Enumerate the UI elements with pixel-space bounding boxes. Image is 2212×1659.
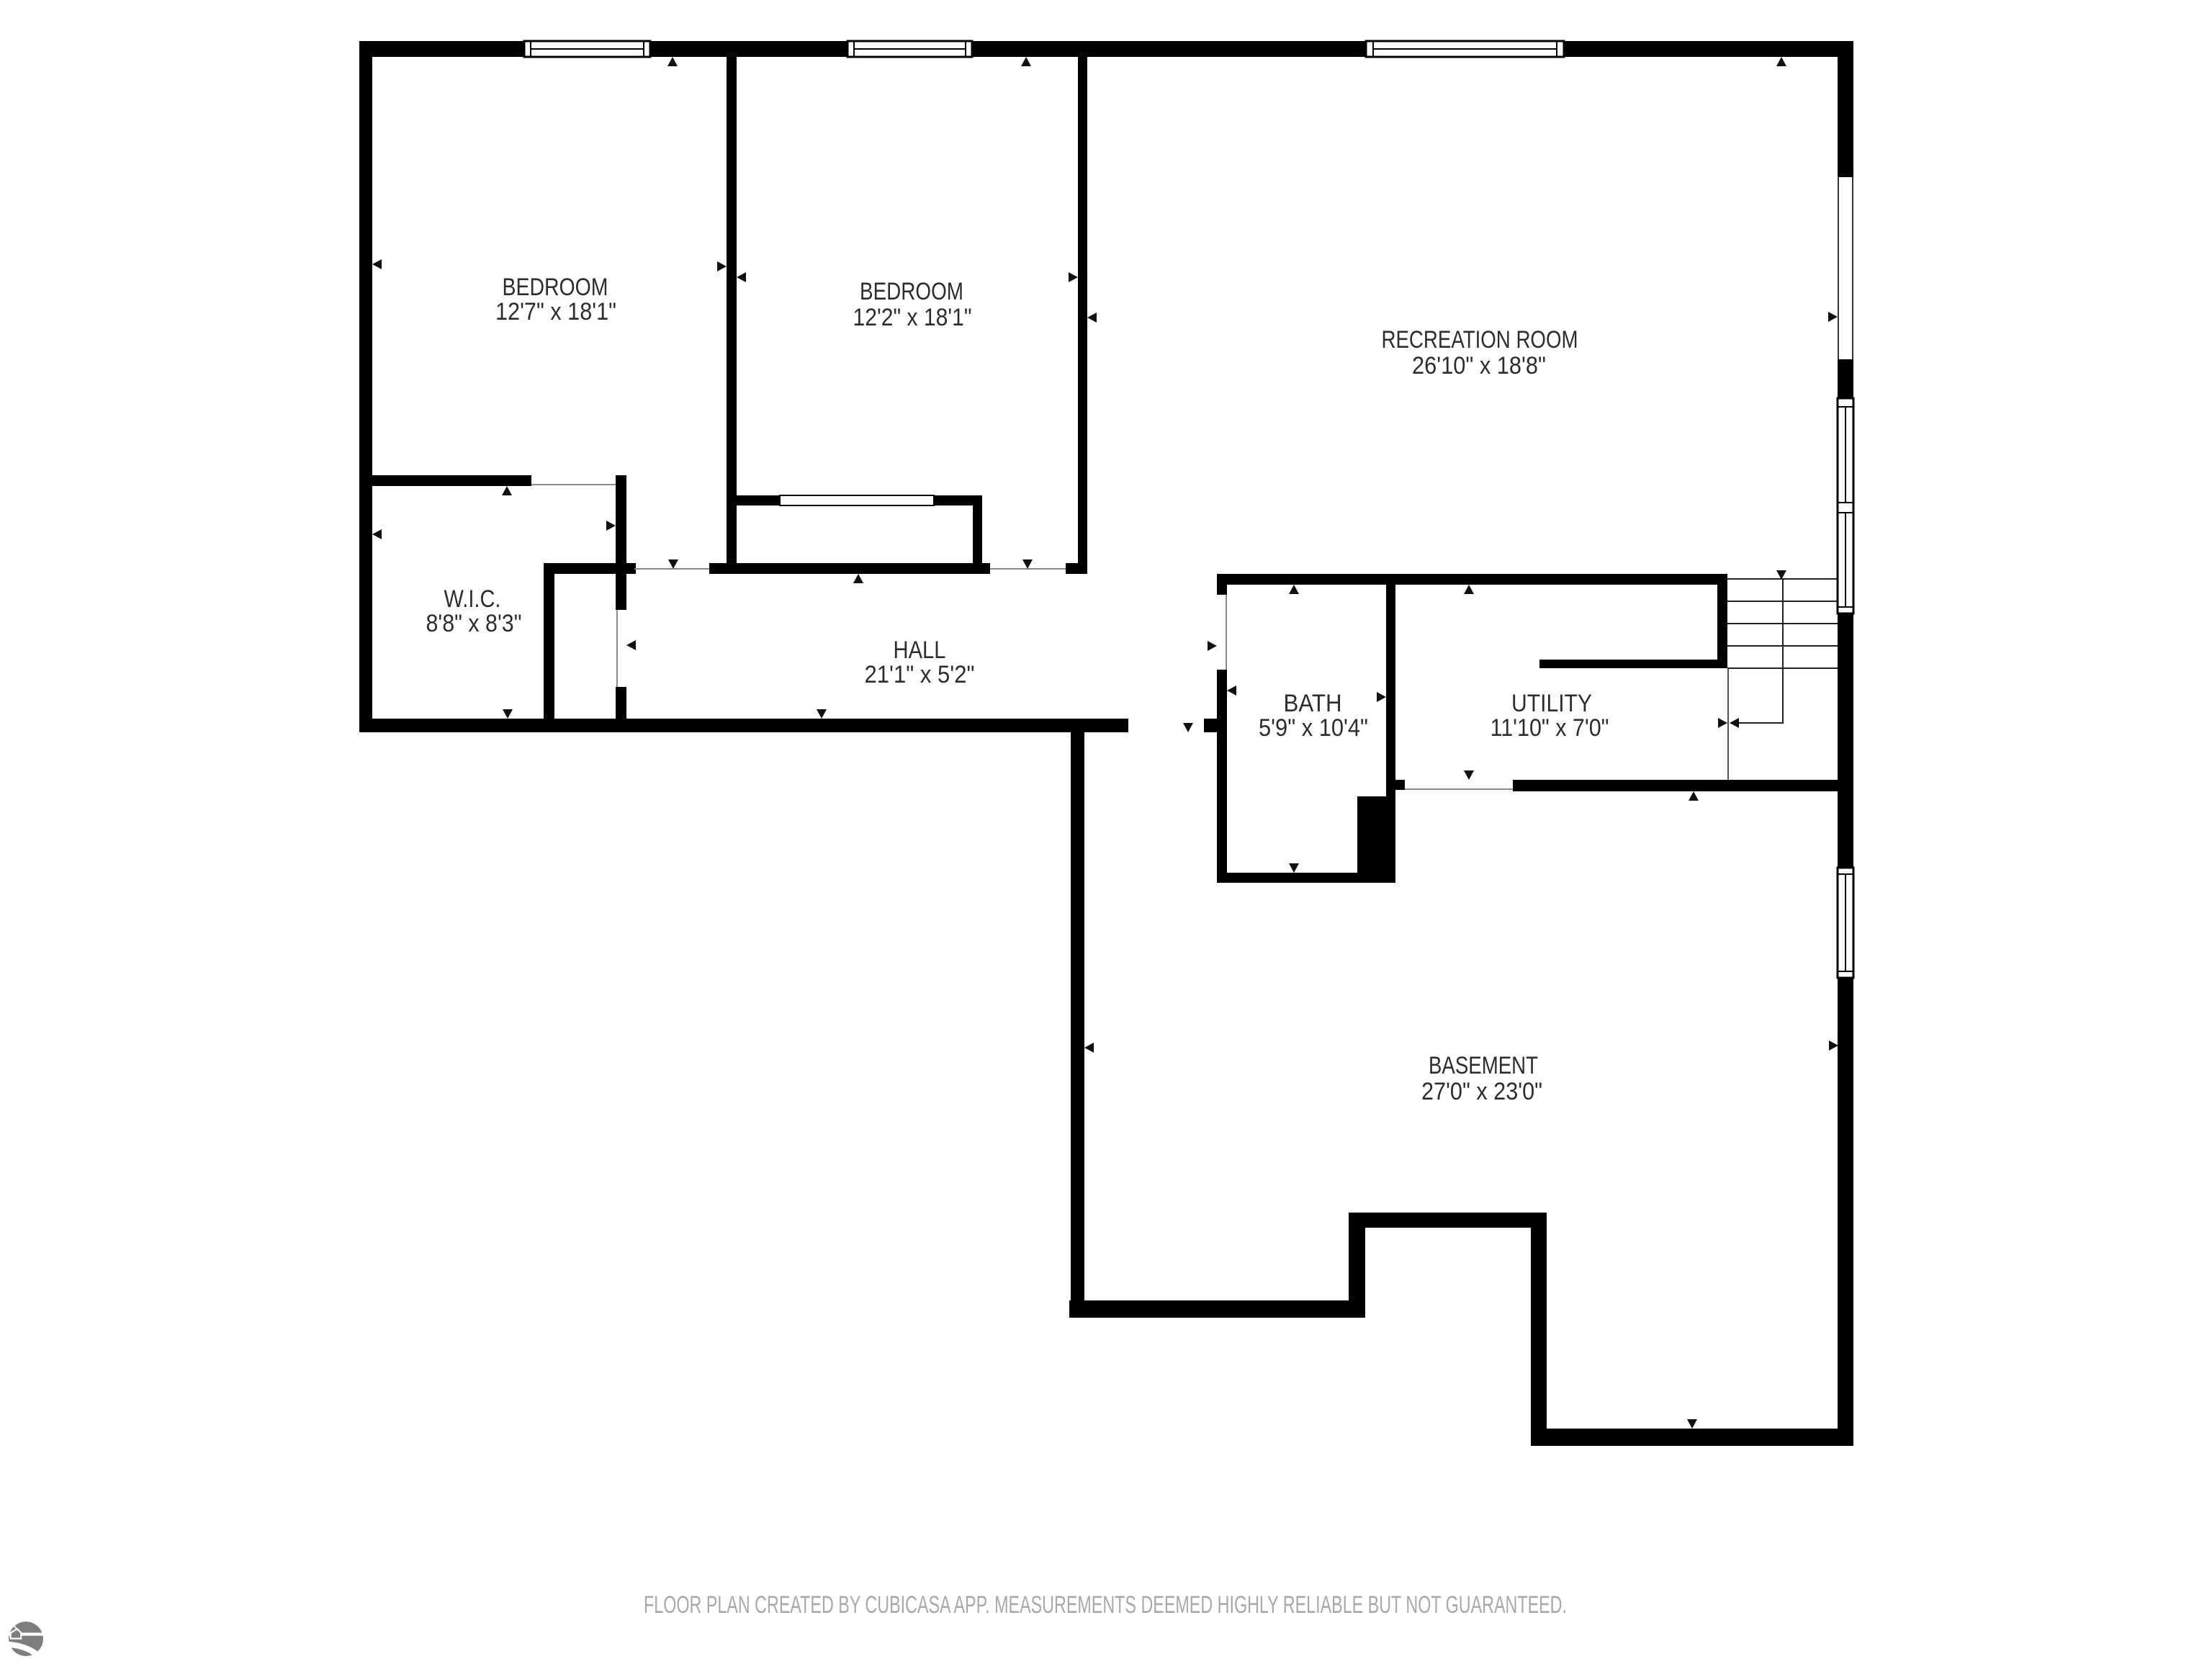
svg-text:HALL: HALL: [894, 637, 946, 664]
svg-text:11'10" x 7'0": 11'10" x 7'0": [1491, 714, 1609, 742]
svg-text:8'8" x 8'3": 8'8" x 8'3": [426, 610, 522, 637]
svg-text:UTILITY: UTILITY: [1511, 690, 1592, 717]
svg-text:21'1" x 5'2": 21'1" x 5'2": [865, 661, 975, 688]
svg-text:BATH: BATH: [1284, 690, 1342, 717]
svg-text:BASEMENT: BASEMENT: [1429, 1052, 1538, 1079]
svg-text:RECREATION ROOM: RECREATION ROOM: [1382, 326, 1578, 354]
svg-text:BEDROOM: BEDROOM: [503, 274, 608, 301]
svg-text:W.I.C.: W.I.C.: [444, 585, 501, 613]
svg-text:12'7" x 18'1": 12'7" x 18'1": [495, 298, 616, 325]
svg-text:27'0" x 23'0": 27'0" x 23'0": [1421, 1078, 1542, 1105]
svg-text:26'10" x 18'8": 26'10" x 18'8": [1412, 352, 1546, 379]
svg-text:12'2" x 18'1": 12'2" x 18'1": [853, 304, 972, 331]
svg-text:FLOOR PLAN CREATED BY CUBICASA: FLOOR PLAN CREATED BY CUBICASA APP. MEAS…: [644, 1591, 1567, 1619]
svg-text:BEDROOM: BEDROOM: [860, 278, 963, 305]
svg-text:5'9" x 10'4": 5'9" x 10'4": [1259, 714, 1368, 742]
